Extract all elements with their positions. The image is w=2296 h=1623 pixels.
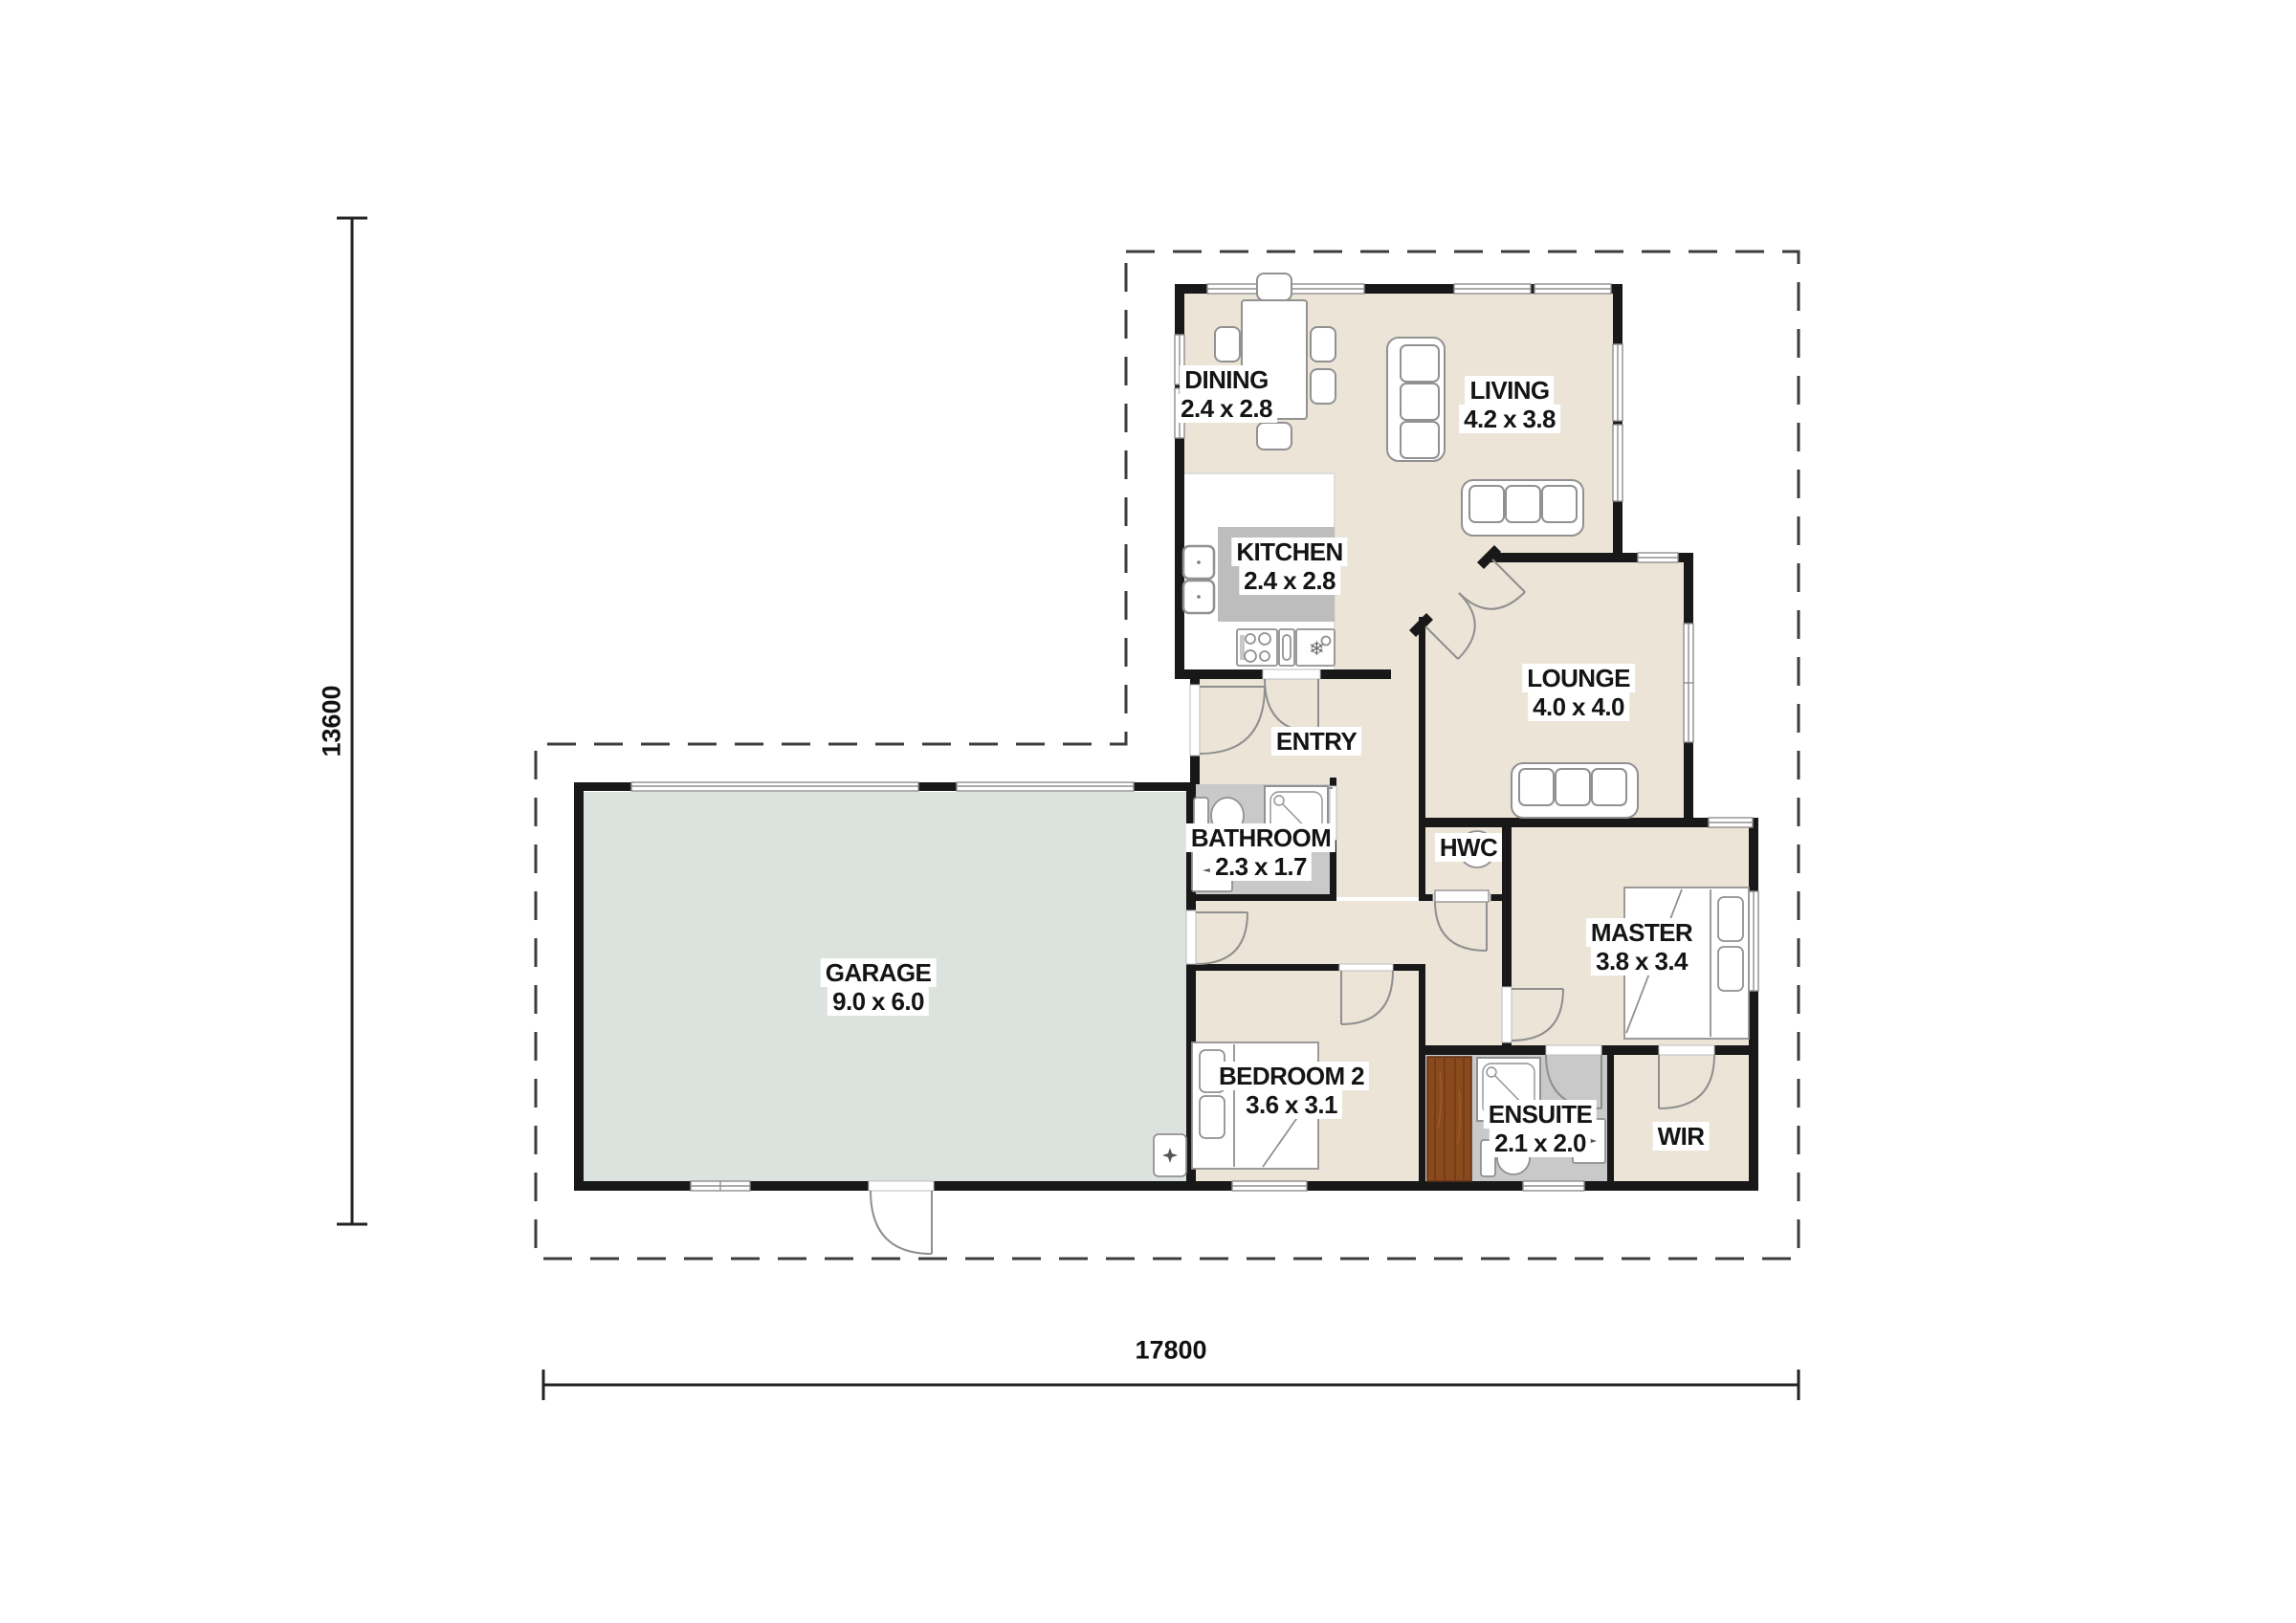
- cooktop-icon: [1237, 629, 1277, 666]
- room-label-dining: DINING2.4 x 2.8: [1176, 365, 1277, 423]
- wall-bathroom-bottom: [1196, 894, 1336, 901]
- wall-ensuite-wir-divider: [1607, 1055, 1614, 1183]
- wall-master-right: [1749, 818, 1758, 1191]
- sofa-icon-living-vertical: [1387, 338, 1445, 461]
- hwc-door-slab: [1435, 890, 1489, 902]
- room-label-kitchen: KITCHEN2.4 x 2.8: [1231, 537, 1347, 595]
- room-label-garage: GARAGE9.0 x 6.0: [821, 958, 937, 1016]
- fridge-icon: ❄: [1296, 629, 1335, 666]
- room-label-hwc: HWC: [1435, 833, 1502, 862]
- sofa-icon-living-horizontal: [1462, 480, 1583, 536]
- wall-lounge-left: [1419, 617, 1425, 901]
- door-gap-bedroom2: [1339, 964, 1393, 971]
- door-gap-garage-ext: [869, 1181, 934, 1191]
- floor-hall-strip: [1196, 901, 1512, 968]
- floor-hall-nook: [1425, 964, 1502, 1048]
- wall-bedroom2-right: [1419, 964, 1425, 1191]
- laundry-tub-icon: [1154, 1134, 1186, 1176]
- dimension-label-width: 17800: [1131, 1336, 1210, 1366]
- door-gap-entry: [1190, 685, 1200, 756]
- dimension-label-height: 13600: [318, 681, 347, 760]
- kitchen-sink-icon: [1183, 546, 1214, 613]
- floor-plan-canvas: ❄: [0, 0, 2296, 1623]
- floor-hall: [1336, 784, 1419, 897]
- wall-garage-left: [574, 784, 584, 1191]
- wardrobe-panel-icon: [1427, 1057, 1471, 1181]
- room-label-entry: ENTRY: [1271, 727, 1361, 756]
- wall-master-top: [1419, 818, 1758, 827]
- room-label-master: MASTER3.8 x 3.4: [1586, 918, 1697, 976]
- room-label-lounge: LOUNGE4.0 x 4.0: [1522, 664, 1635, 721]
- wall-living-right: [1613, 284, 1623, 562]
- floor-wir: [1614, 1055, 1749, 1183]
- door-gap-garage-hall: [1186, 910, 1196, 964]
- door-gap-wir: [1659, 1045, 1714, 1055]
- room-label-ensuite: ENSUITE2.1 x 2.0: [1484, 1100, 1597, 1157]
- room-label-living: LIVING4.2 x 3.8: [1459, 376, 1560, 433]
- room-label-bathroom: BATHROOM2.3 x 1.7: [1186, 823, 1336, 881]
- door-arc-garage-ext: [871, 1191, 932, 1254]
- room-label-wir: WIR: [1653, 1122, 1710, 1151]
- door-gap-master: [1502, 987, 1512, 1042]
- oven-icon: [1279, 629, 1294, 666]
- room-label-bedroom2: BEDROOM 23.6 x 3.1: [1214, 1062, 1369, 1119]
- door-gap-kitchen: [1263, 669, 1320, 679]
- sofa-icon-lounge: [1512, 763, 1638, 818]
- door-gap-ensuite: [1546, 1045, 1601, 1055]
- floor-plan-drawing: ❄: [0, 0, 2296, 1623]
